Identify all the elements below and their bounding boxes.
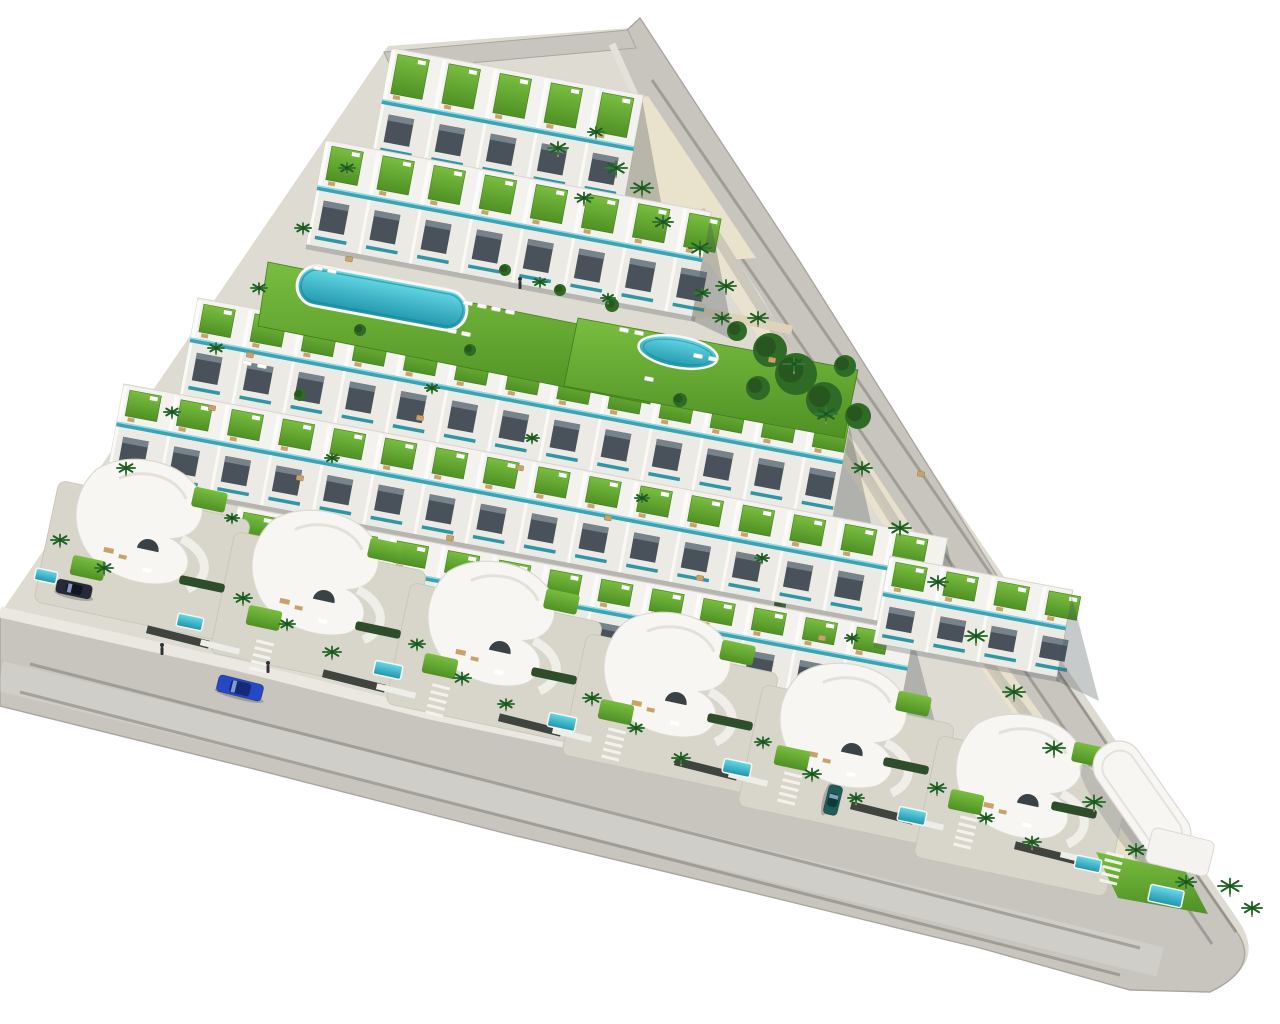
roof-lawn (176, 400, 212, 431)
roof-lawn (279, 419, 315, 450)
roof-lawn (428, 165, 466, 204)
patio-table (604, 515, 612, 521)
roof-lawn (125, 390, 161, 421)
patio-table (416, 415, 424, 421)
roof-lawn (687, 495, 723, 526)
roof-lawn (595, 92, 634, 137)
roof-lawn (442, 64, 481, 109)
patio-table (818, 635, 826, 641)
pedestrian (518, 277, 522, 289)
patio-table (208, 405, 216, 411)
roof-lawn (432, 448, 468, 479)
roof-lawn (493, 73, 532, 118)
tree (845, 403, 871, 429)
tree (354, 324, 366, 336)
patio-table (516, 465, 524, 471)
tree (499, 264, 511, 276)
patio-table (296, 475, 304, 481)
roof-lawn (530, 184, 568, 223)
roof-lawn (790, 515, 826, 546)
patio-table (345, 256, 353, 262)
roof-lawn (534, 467, 570, 498)
roof-lawn (227, 409, 263, 440)
patio-table (768, 357, 776, 363)
tree (746, 376, 770, 400)
tree (673, 393, 687, 407)
roof-lawn (841, 524, 877, 555)
patio-table (696, 575, 704, 581)
tree (464, 344, 476, 356)
tree (834, 355, 856, 377)
tree (554, 284, 566, 296)
roof-lawn (739, 505, 775, 536)
pedestrian (160, 643, 164, 655)
tree (727, 321, 747, 341)
patio-table (246, 352, 254, 358)
tree (294, 389, 306, 401)
pedestrian (266, 661, 270, 673)
patio-table (917, 471, 925, 477)
palm-tree (1218, 879, 1242, 897)
roof-lawn (377, 156, 415, 195)
patio-table (446, 535, 454, 541)
roof-lawn (483, 457, 519, 488)
roof-lawn (381, 438, 417, 469)
roof-lawn (199, 304, 236, 337)
roof-lawn (585, 476, 621, 507)
site-plan-render (0, 0, 1280, 1024)
render-canvas (0, 0, 1280, 1024)
roof-lawn (544, 83, 583, 128)
roof-lawn (479, 175, 517, 214)
roof-lawn (391, 54, 430, 99)
palm-tree (1242, 902, 1262, 917)
